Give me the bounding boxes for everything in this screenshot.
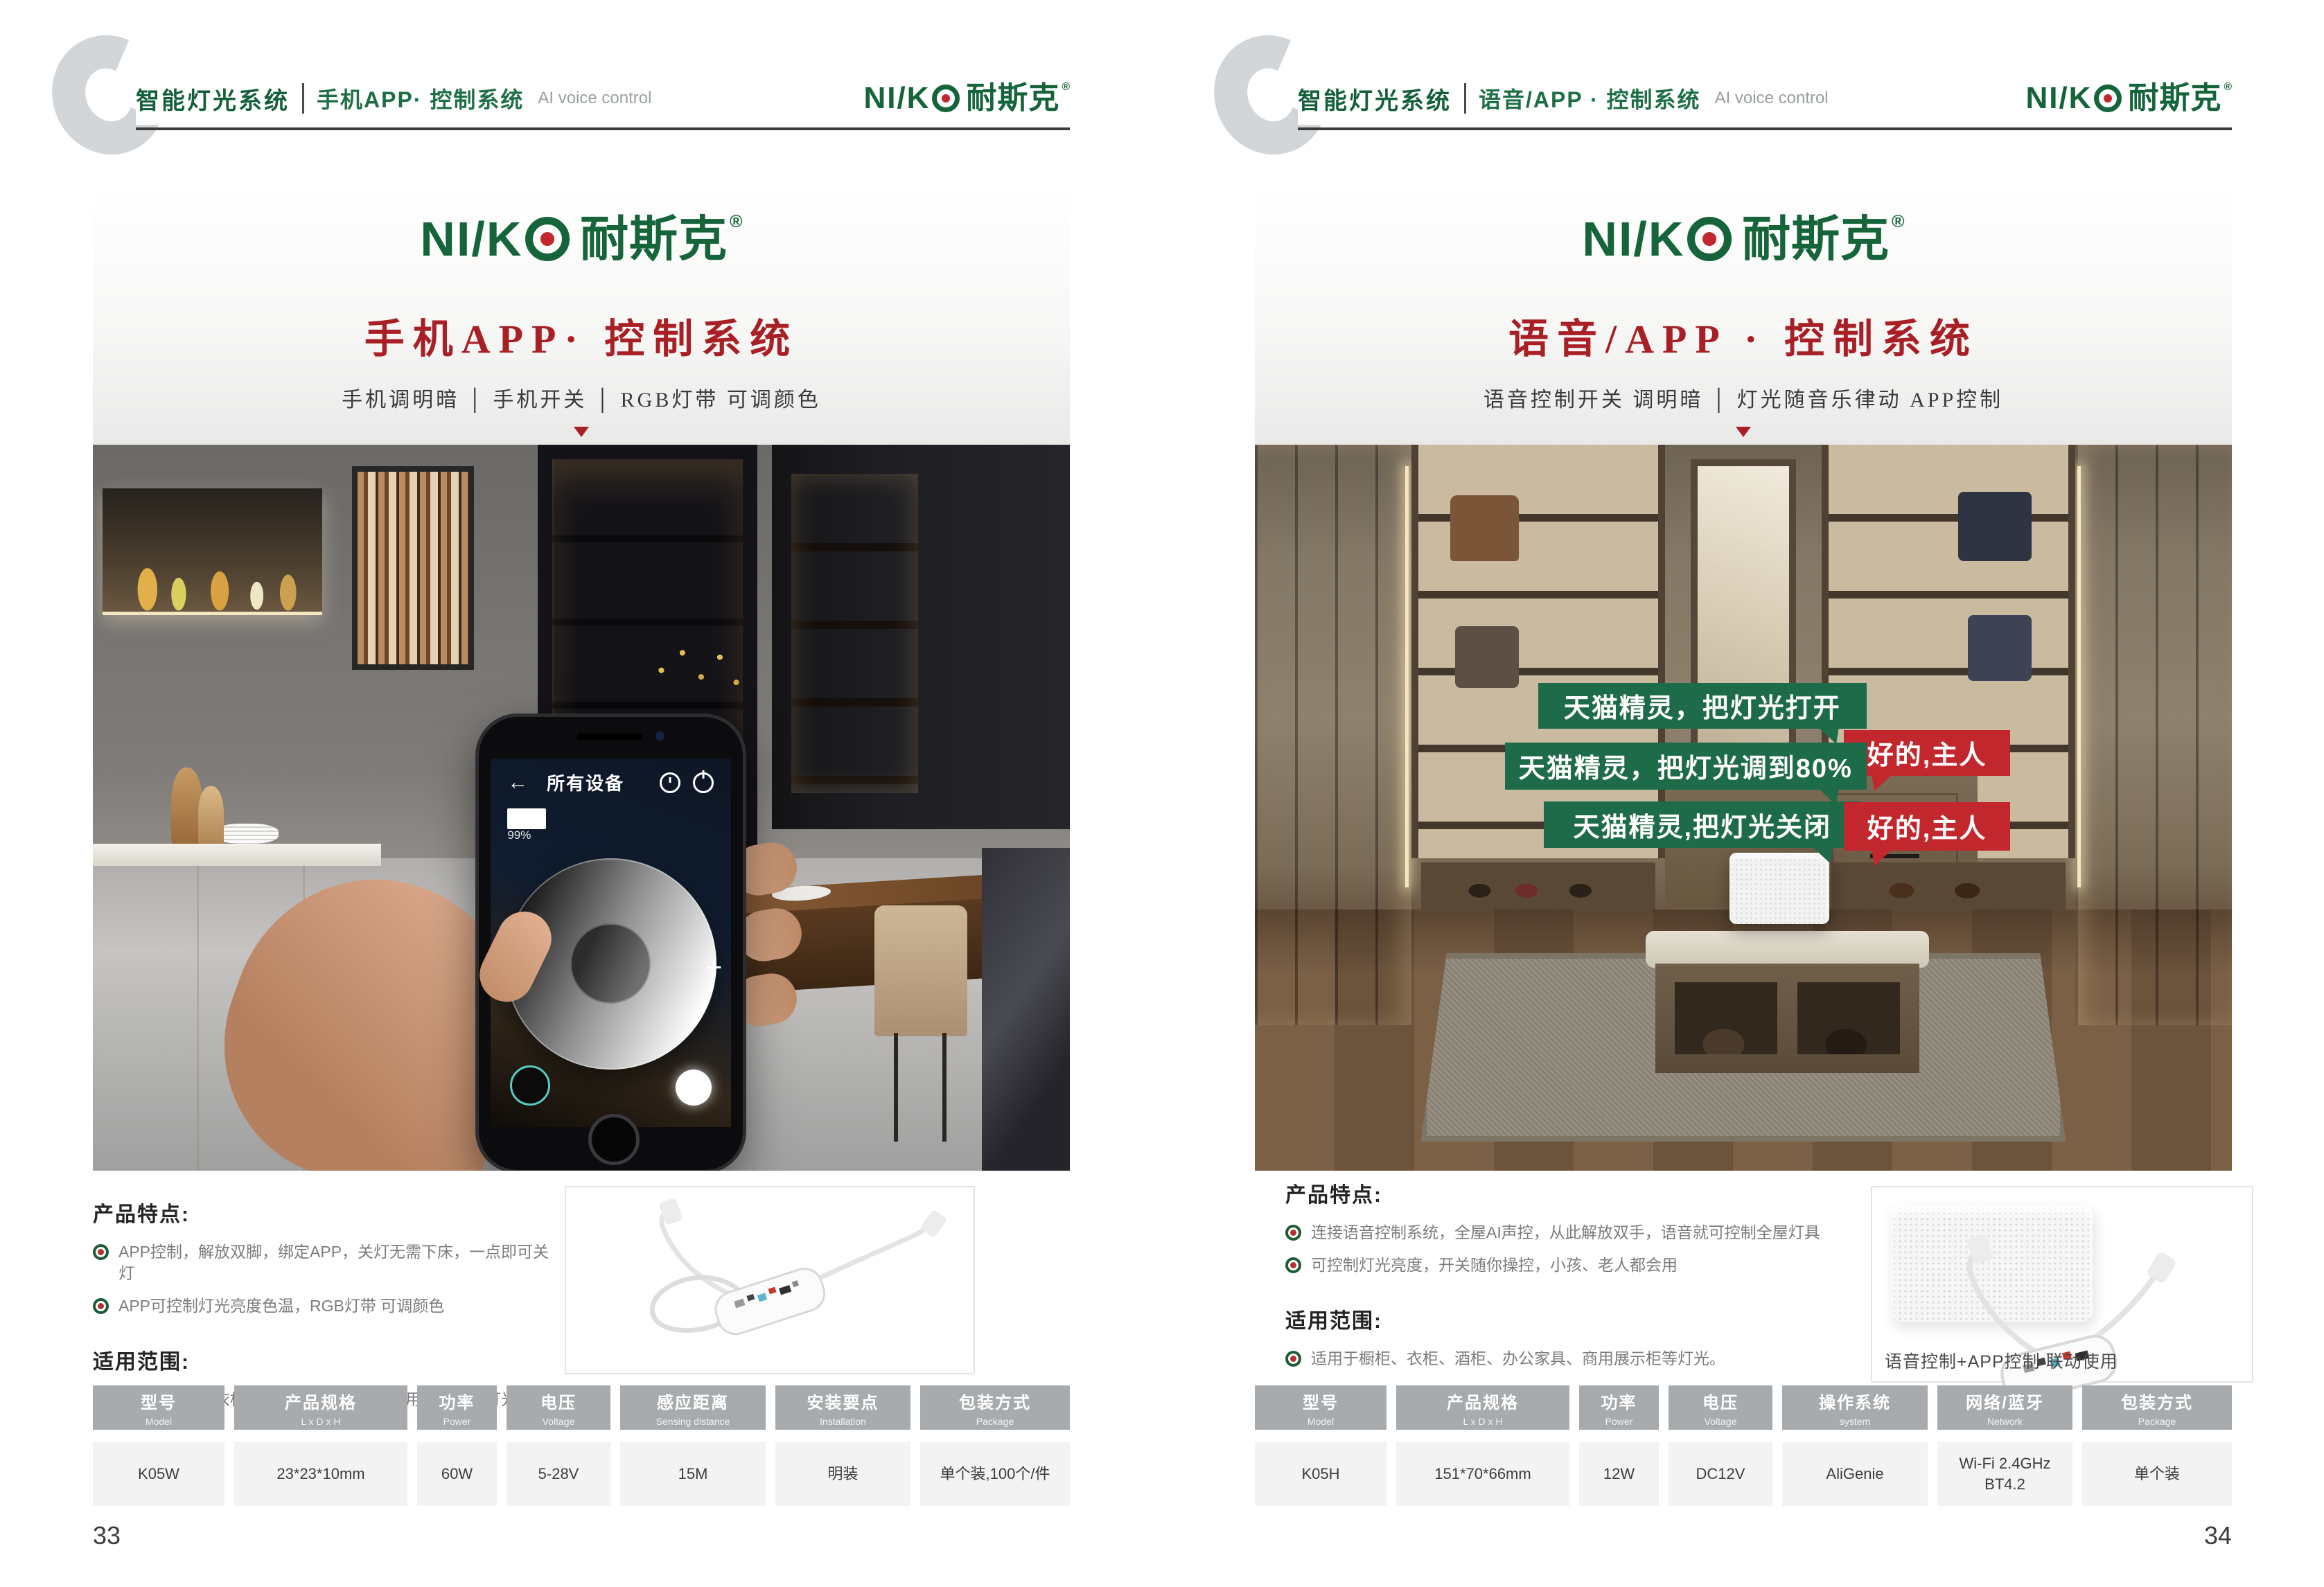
logo-bullet-icon	[1285, 1225, 1301, 1241]
features-heading: 产品特点:	[1285, 1178, 1854, 1208]
nisko-logo-cn: 耐斯克	[966, 83, 1059, 114]
feature-item: 连接语音控制系统，全屋AI声控，从此解放双手，语音就可控制全屋灯具	[1285, 1222, 1854, 1243]
col-label: 功率	[439, 1389, 475, 1413]
nisko-logo-cn: 耐斯克	[2128, 83, 2221, 114]
header-subtitle-en: AI voice control	[1715, 89, 1829, 108]
shoe-shelf	[1421, 862, 1655, 910]
col-label: 电压	[540, 1389, 576, 1413]
down-triangle-icon	[1736, 427, 1751, 437]
col-label: 功率	[1601, 1389, 1637, 1413]
registered-mark: ®	[2224, 82, 2232, 93]
speaker-product-thumbnail: 语音控制+APP控制 联动使用	[1871, 1186, 2253, 1383]
banner-title: 手机APP· 控制系统	[93, 306, 1070, 364]
header-product-title: 手机APP· 控制系统	[317, 82, 524, 114]
closet-left-shelves	[1411, 445, 1666, 858]
spec-value-os: AliGenie	[1782, 1442, 1928, 1506]
feature-text: 连接语音控制系统，全屋AI声控，从此解放双手，语音就可控制全屋灯具	[1311, 1222, 1820, 1243]
feature-text: 可控制灯光亮度，开关随你操控，小孩、老人都会用	[1311, 1254, 1678, 1276]
spec-value-package: 单个装	[2082, 1442, 2232, 1506]
col-label: 安装要点	[807, 1389, 879, 1413]
voice-command-bubble: 天猫精灵，把灯光打开	[1538, 683, 1867, 729]
col-sublabel: Power	[1605, 1416, 1633, 1427]
col-label: 电压	[1702, 1389, 1738, 1413]
features-heading: 产品特点:	[93, 1197, 564, 1227]
registered-mark: ®	[1892, 213, 1905, 231]
phone-earpiece	[576, 734, 642, 740]
col-label: 操作系统	[1819, 1389, 1891, 1413]
col-sublabel: Package	[2138, 1416, 2176, 1427]
shoes	[1812, 1022, 1881, 1054]
scope-item: 适用于橱柜、衣柜、酒柜、办公家具、商用展示柜等灯光。	[1285, 1348, 1854, 1369]
spec-col-size: 产品规格L x D x H	[234, 1385, 407, 1430]
col-label: 型号	[141, 1389, 177, 1413]
spec-col-power: 功率Power	[417, 1385, 497, 1430]
col-label: 感应距离	[657, 1389, 729, 1413]
page-header: 智能灯光系统 语音/APP · 控制系统 AI voice control NI…	[1298, 72, 2232, 125]
spec-table-row: K05W 23*23*10mm 60W 5-28V 15M 明装 单个装,100…	[93, 1442, 1070, 1506]
spec-value-network: Wi-Fi 2.4GHz BT4.2	[1937, 1442, 2072, 1506]
spec-value-power: 12W	[1579, 1442, 1659, 1506]
voice-command-bubble: 天猫精灵,把灯光关闭	[1544, 801, 1860, 848]
kitchen-cutting-board	[171, 768, 202, 844]
nisko-logo-latin: NI/K	[863, 83, 930, 114]
kitchen-wall-art	[352, 466, 474, 669]
col-sublabel: Model	[146, 1416, 172, 1427]
header-subtitle-en: AI voice control	[538, 89, 651, 108]
header-divider	[302, 83, 304, 114]
logo-bullet-icon	[93, 1298, 109, 1314]
spec-col-network: 网络/蓝牙Network	[1937, 1385, 2072, 1430]
spec-value-package: 单个装,100个/件	[920, 1442, 1070, 1506]
spec-col-voltage: 电压Voltage	[1669, 1385, 1772, 1430]
closet-photo: 天猫精灵，把灯光打开 好的,主人 天猫精灵，把灯光调到80% 天猫精灵,把灯光关…	[1255, 445, 2232, 1171]
page-number: 34	[2204, 1521, 2232, 1550]
brightness-percent: 99%	[507, 828, 531, 842]
header-rule	[1298, 127, 2232, 130]
spec-value-model: K05W	[93, 1442, 225, 1506]
logo-bullet-icon	[1285, 1257, 1301, 1273]
header-product-title: 语音/APP · 控制系统	[1479, 82, 1701, 114]
kitchen-plate-stack	[215, 824, 279, 844]
feature-item: 可控制灯光亮度，开关随你操控，小孩、老人都会用	[1285, 1254, 1854, 1276]
handbag	[1455, 626, 1519, 688]
spec-table-row: K05H 151*70*66mm 12W DC12V AliGenie Wi-F…	[1255, 1442, 2232, 1506]
kitchen-chair-legs	[894, 1033, 953, 1142]
closet-light-strip	[1405, 466, 1409, 887]
header-section-title: 智能灯光系统	[1298, 82, 1452, 116]
spec-col-installation: 安装要点Installation	[775, 1385, 910, 1430]
controller-product-image	[566, 1187, 974, 1373]
scope-heading: 适用范围:	[93, 1345, 564, 1375]
col-label: 产品规格	[285, 1389, 357, 1413]
spec-table-header: 型号Model 产品规格L x D x H 功率Power 电压Voltage …	[1255, 1385, 2232, 1430]
nisko-logo-large: NI/K 耐斯克 ®	[1582, 215, 1904, 263]
col-sublabel: Voltage	[543, 1416, 575, 1427]
catalog-page-34: 智能灯光系统 语音/APP · 控制系统 AI voice control NI…	[1162, 0, 2324, 1587]
header-divider	[1464, 83, 1466, 114]
spec-col-sensing: 感应距离Sensing distance	[620, 1385, 766, 1430]
nisko-logo-target-icon	[2094, 85, 2122, 112]
nisko-logo: NI/K 耐斯克 ®	[2025, 83, 2232, 114]
col-label: 产品规格	[1447, 1389, 1519, 1413]
logo-bullet-icon	[1285, 1351, 1301, 1367]
registered-mark: ®	[1062, 82, 1070, 93]
nisko-logo-target-icon	[1687, 217, 1732, 261]
nisko-logo-large: NI/K 耐斯克 ®	[420, 215, 742, 263]
closet-light-strip	[2077, 466, 2081, 887]
phone-camera-icon	[655, 732, 664, 741]
feature-item: APP控制，解放双脚，绑定APP，关灯无需下床，一点即可关灯	[93, 1241, 564, 1284]
feature-text: APP控制，解放双脚，绑定APP，关灯无需下床，一点即可关灯	[118, 1241, 564, 1284]
thumbnail-caption: 语音控制+APP控制 联动使用	[1885, 1348, 2118, 1373]
voice-command-bubble: 天猫精灵，把灯光调到80%	[1505, 743, 1867, 790]
phone-home-button	[588, 1114, 640, 1165]
col-sublabel: Voltage	[1705, 1416, 1737, 1427]
spec-value-voltage: 5-28V	[507, 1442, 610, 1506]
header-section-title: 智能灯光系统	[136, 82, 290, 116]
product-features-section: 产品特点: 连接语音控制系统，全屋AI声控，从此解放双手，语音就可控制全屋灯具 …	[1285, 1178, 1854, 1381]
kitchen-counter	[93, 844, 381, 865]
spec-table-header: 型号Model 产品规格L x D x H 功率Power 电压Voltage …	[93, 1385, 1070, 1430]
col-label: 包装方式	[959, 1389, 1031, 1413]
feature-item: APP可控制灯光亮度色温，RGB灯带 可调颜色	[93, 1295, 564, 1317]
power-icon	[693, 772, 714, 793]
phone-app-topbar: ← 所有设备	[491, 768, 730, 797]
bench-cushion	[1646, 931, 1929, 967]
nisko-logo-cn: 耐斯克	[580, 215, 728, 263]
banner-subtitle: 语音控制开关 调明暗 │ 灯光随音乐律动 APP控制	[1255, 382, 2232, 413]
col-sublabel: Power	[443, 1416, 471, 1427]
scope-heading: 适用范围:	[1285, 1304, 1854, 1334]
spec-col-size: 产品规格L x D x H	[1396, 1385, 1569, 1430]
closet-right-wardrobe	[2075, 445, 2232, 1025]
col-label: 网络/蓝牙	[1966, 1389, 2044, 1413]
scope-text: 适用于橱柜、衣柜、酒柜、办公家具、商用展示柜等灯光。	[1311, 1348, 1725, 1369]
dimmer-dial-center	[570, 923, 651, 1004]
col-sublabel: system	[1840, 1416, 1870, 1427]
col-sublabel: Model	[1308, 1416, 1334, 1427]
plus-icon: +	[705, 950, 723, 984]
kitchen-cutting-board-small	[198, 786, 224, 844]
kitchen-right-lit-shelves	[791, 474, 918, 793]
registered-mark: ®	[730, 213, 743, 231]
col-sublabel: L x D x H	[1463, 1416, 1502, 1427]
light-on-button	[676, 1070, 712, 1106]
banner-title: 语音/APP · 控制系统	[1255, 306, 2232, 364]
logo-bullet-icon	[93, 1244, 109, 1260]
spec-col-model: 型号Model	[93, 1385, 225, 1430]
nisko-logo-latin: NI/K	[420, 215, 522, 263]
page-header: 智能灯光系统 手机APP· 控制系统 AI voice control NI/K…	[136, 72, 1070, 125]
spec-col-os: 操作系统system	[1782, 1385, 1928, 1430]
spec-col-package: 包装方式Package	[920, 1385, 1070, 1430]
briefcase	[1958, 492, 2032, 561]
nisko-logo-cn: 耐斯克	[1742, 215, 1890, 263]
banner-subtitle: 手机调明暗 │ 手机开关 │ RGB灯带 可调颜色	[93, 382, 1070, 413]
spec-col-voltage: 电压Voltage	[507, 1385, 610, 1430]
col-sublabel: Package	[976, 1416, 1014, 1427]
spec-table: 型号Model 产品规格L x D x H 功率Power 电压Voltage …	[1255, 1385, 2232, 1506]
col-label: 型号	[1303, 1389, 1339, 1413]
kitchen-chair	[874, 905, 967, 1036]
nisko-logo-target-icon	[932, 85, 960, 112]
col-sublabel: Network	[1987, 1416, 2023, 1427]
spec-value-size: 151*70*66mm	[1396, 1442, 1569, 1506]
kitchen-marble-island	[982, 848, 1070, 1171]
nisko-logo-latin: NI/K	[1582, 215, 1684, 263]
shoe-shelf	[1831, 862, 2066, 910]
col-sublabel: L x D x H	[301, 1416, 340, 1427]
catalog-page-33: 智能灯光系统 手机APP· 控制系统 AI voice control NI/K…	[0, 0, 1162, 1587]
feature-text: APP可控制灯光亮度色温，RGB灯带 可调颜色	[118, 1295, 444, 1317]
backpack	[1968, 615, 2032, 680]
spec-value-power: 60W	[417, 1442, 497, 1506]
nisko-logo-latin: NI/K	[2025, 83, 2092, 114]
header-rule	[136, 127, 1070, 130]
col-sublabel: Installation	[820, 1416, 866, 1427]
voice-reply-bubble: 好的,主人	[1844, 802, 2010, 851]
spec-table: 型号Model 产品规格L x D x H 功率Power 电压Voltage …	[93, 1385, 1070, 1506]
smart-speaker	[1729, 853, 1829, 924]
closet-left-wardrobe	[1255, 445, 1411, 1025]
moon-mode-button	[510, 1065, 550, 1106]
heels	[1689, 1022, 1758, 1054]
back-arrow-icon: ←	[507, 771, 528, 795]
spec-value-model: K05H	[1255, 1442, 1387, 1506]
alarm-clock-icon	[660, 772, 680, 793]
phone-nav-title: 所有设备	[547, 770, 624, 795]
spec-value-installation: 明装	[775, 1442, 910, 1506]
nisko-logo-target-icon	[525, 217, 570, 261]
product-banner: NI/K 耐斯克 ® 手机APP· 控制系统 手机调明暗 │ 手机开关 │ RG…	[93, 186, 1070, 445]
col-sublabel: Sensing distance	[656, 1416, 730, 1427]
kitchen-photo: ← 所有设备 99% +	[93, 445, 1070, 1171]
spec-col-power: 功率Power	[1579, 1385, 1659, 1430]
page-number: 33	[93, 1521, 121, 1550]
brightness-indicator	[507, 808, 546, 829]
spec-value-voltage: DC12V	[1669, 1442, 1772, 1506]
spec-col-model: 型号Model	[1255, 1385, 1387, 1430]
nisko-logo: NI/K 耐斯克 ®	[863, 83, 1070, 114]
spec-value-size: 23*23*10mm	[234, 1442, 407, 1506]
kitchen-bottles	[112, 532, 308, 612]
product-banner: NI/K 耐斯克 ® 语音/APP · 控制系统 语音控制开关 调明暗 │ 灯光…	[1255, 186, 2232, 445]
spec-value-sensing: 15M	[620, 1442, 766, 1506]
down-triangle-icon	[574, 427, 589, 437]
spec-col-package: 包装方式Package	[2082, 1385, 2232, 1430]
col-label: 包装方式	[2121, 1389, 2193, 1413]
controller-product-thumbnail	[565, 1186, 975, 1374]
voice-reply-bubble: 好的,主人	[1844, 730, 2010, 776]
handbag	[1450, 495, 1519, 560]
